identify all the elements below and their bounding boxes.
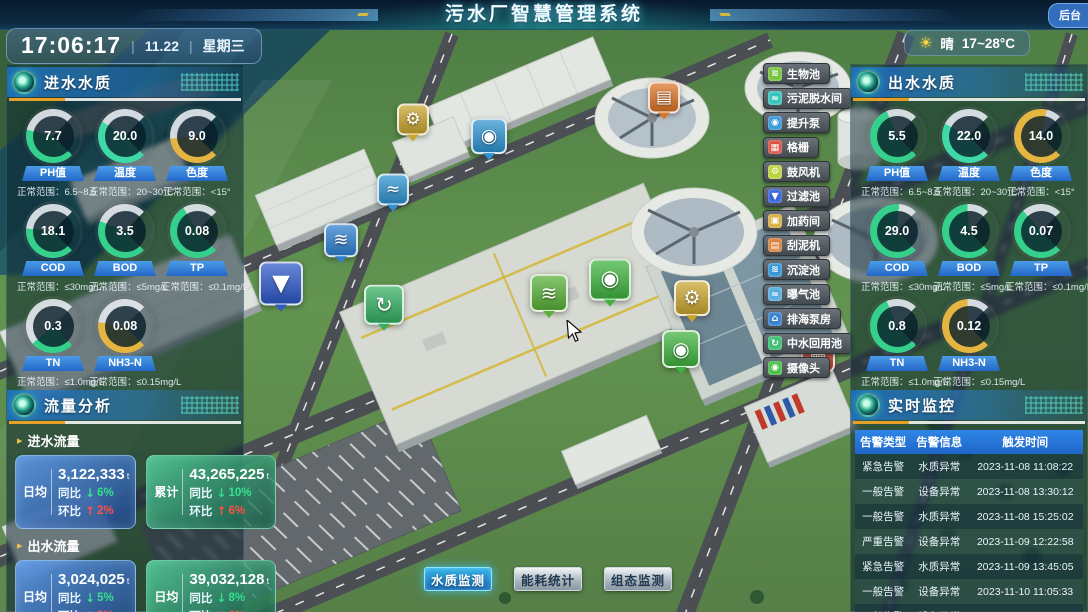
gauge-label: PH值 xyxy=(866,166,928,181)
gauge-normal-range: 正常范围：≤0.15mg/L xyxy=(89,374,161,388)
gauge-dial-center: 20.0 xyxy=(105,116,146,157)
marker-pointer-icon xyxy=(483,153,495,160)
section-ring-icon xyxy=(12,70,36,94)
facility-icon: ↻ xyxy=(768,336,782,350)
marker-pointer-icon xyxy=(604,300,616,307)
gauge-label: TP xyxy=(166,261,228,276)
inlet-quality-header: 进水水质 xyxy=(7,67,243,97)
gauge-normal-range: 正常范围：≤30mg/L xyxy=(17,279,89,293)
gauge-dial-center: 0.08 xyxy=(105,306,146,347)
gauge-normal-range: 正常范围：≤30mg/L xyxy=(861,279,933,293)
facility-button[interactable]: ≋ 沉淀池 xyxy=(763,259,830,280)
weather-condition: 晴 xyxy=(940,33,954,53)
weather-temperature: 17~28°C xyxy=(962,36,1015,51)
yoy-row: 同比 ↓ 5% xyxy=(58,590,129,606)
alarm-type-cell: 紧急告警 xyxy=(855,454,911,479)
flow-card-body: 39,032,128t 同比 ↓ 8% 环比 ↑ 6% xyxy=(189,571,269,612)
yoy-row: 同比 ↓ 10% xyxy=(189,485,269,501)
facility-icon: ▤ xyxy=(768,238,782,252)
flow-value: 3,122,333t xyxy=(58,466,129,483)
weather-widget: ☀ 晴 17~28°C xyxy=(904,30,1030,56)
marker-icon: ≈ xyxy=(386,181,400,198)
alarm-info-cell: 设备异常 xyxy=(911,579,967,604)
current-time: 17:06:17 xyxy=(21,32,121,59)
trend-arrow-icon: ↓ xyxy=(216,591,226,605)
facility-icon: ≈ xyxy=(768,91,782,105)
gauge-value: 20.0 xyxy=(113,129,137,143)
facility-icon: ▣ xyxy=(768,214,782,228)
flow-card-tag: 累计 xyxy=(153,485,179,499)
gauge-dial-center: 5.5 xyxy=(877,116,918,157)
alarm-rows: 紧急告警 水质异常 2023-11-08 11:08:22 一般告警 设备异常 … xyxy=(855,454,1083,612)
alarm-time-cell: 2023-11-08 11:08:22 xyxy=(967,454,1083,479)
facility-button[interactable]: ≈ 污泥脱水间 xyxy=(763,88,852,109)
gauge-dial-center: 29.0 xyxy=(877,211,918,252)
header-decoration-right xyxy=(710,9,960,21)
section-title: 实时监控 xyxy=(888,395,956,416)
quality-gauge: 4.5 BOD 正常范围：≤5mg/L xyxy=(933,204,1005,293)
facility-button[interactable]: ▤ 刮泥机 xyxy=(763,235,830,256)
alarm-time-cell: 2023-11-08 13:30:12 xyxy=(967,479,1083,504)
scene-marker-camera[interactable]: ◉ xyxy=(589,259,631,301)
gauge-dial: 5.5 xyxy=(870,109,924,163)
quality-gauge: 0.3 TN 正常范围：≤1.0mg/L xyxy=(17,299,89,388)
trend-arrow-icon: ↑ xyxy=(85,504,95,518)
gauge-label: 色度 xyxy=(166,166,228,181)
divider xyxy=(51,469,52,515)
gauge-normal-range: 正常范围：20~30°C xyxy=(89,184,161,198)
quality-gauge: 0.07 TP 正常范围：≤0.1mg/L xyxy=(1005,204,1077,293)
quality-gauge: 5.5 PH值 正常范围：6.5~8.5 xyxy=(861,109,933,198)
quality-gauge: 3.5 BOD 正常范围：≤5mg/L xyxy=(89,204,161,293)
gauge-value: 0.3 xyxy=(44,319,61,333)
gauge-label: TN xyxy=(866,356,928,371)
gauge-dial-center: 0.12 xyxy=(949,306,990,347)
flow-card-tag: 日均 xyxy=(22,485,48,499)
gauge-dial: 0.3 xyxy=(26,299,80,353)
marker-icon: ◉ xyxy=(672,339,689,359)
trend-arrow-icon: ↑ xyxy=(216,504,226,518)
bottom-tab-bar: 水质监测 能耗统计 组态监测 xyxy=(424,567,672,591)
dashboard-root: ⚙ ◉ ▤ ≈ ≋ ▼ ↻ ≋ ◉ ⚙ ◉ ▦ 污水厂智慧管理系统 xyxy=(0,0,1088,612)
gauge-label: 温度 xyxy=(938,166,1000,181)
gauge-normal-range: 正常范围：<15° xyxy=(161,184,233,198)
facility-icon: ⌂ xyxy=(768,312,782,326)
alarm-row[interactable]: 紧急告警 水质异常 2023-11-09 13:45:05 xyxy=(855,554,1083,579)
quality-gauge: 29.0 COD 正常范围：≤30mg/L xyxy=(861,204,933,293)
gauge-dial-center: 0.8 xyxy=(877,306,918,347)
facility-button[interactable]: ▣ 加药间 xyxy=(763,210,830,231)
flow-stat-card: 日均 3,024,025t 同比 ↓ 5% 环比 ↑ 3% xyxy=(15,560,136,612)
gauge-label: 色度 xyxy=(1010,166,1072,181)
section-title: 进水水质 xyxy=(44,72,112,93)
gauge-normal-range: 正常范围：≤5mg/L xyxy=(89,279,161,293)
bullet-icon: ▸ xyxy=(17,539,23,552)
flow-stat-card: 日均 3,122,333t 同比 ↓ 6% 环比 ↑ 2% xyxy=(15,455,136,529)
gauge-dial-center: 0.3 xyxy=(33,306,74,347)
gauge-normal-range: 正常范围：20~30°C xyxy=(933,184,1005,198)
realtime-monitoring-header: 实时监控 xyxy=(851,390,1087,420)
quality-gauge: 9.0 色度 正常范围：<15° xyxy=(161,109,233,198)
alarm-row[interactable]: 紧急告警 水质异常 2023-11-08 11:08:22 xyxy=(855,454,1083,479)
gauge-dial: 0.08 xyxy=(170,204,224,258)
facility-icon: ≋ xyxy=(768,263,782,277)
quality-gauge: 0.12 NH3-N 正常范围：≤0.15mg/L xyxy=(933,299,1005,388)
gauge-normal-range: 正常范围：≤0.15mg/L xyxy=(933,374,1005,388)
marker-icon: ▤ xyxy=(656,89,672,106)
alarm-row[interactable]: 一般告警 水质异常 2023-11-08 15:25:02 xyxy=(855,504,1083,529)
outlet-flow-label: ▸ 出水流量 xyxy=(17,536,243,555)
gauge-label: 温度 xyxy=(94,166,156,181)
gauge-label: TP xyxy=(1010,261,1072,276)
quality-gauge: 0.08 NH3-N 正常范围：≤0.15mg/L xyxy=(89,299,161,388)
gauge-dial-center: 3.5 xyxy=(105,211,146,252)
scene-marker-reuse-pool[interactable]: ↻ xyxy=(364,285,404,325)
divider xyxy=(182,469,183,515)
facility-icon: ⚙ xyxy=(768,165,782,179)
marker-pointer-icon xyxy=(686,315,698,322)
trend-arrow-icon: ↓ xyxy=(85,591,95,605)
scene-marker-blower-fan[interactable]: ⚙ xyxy=(674,280,710,316)
gauge-normal-range: 正常范围：≤1.0mg/L xyxy=(861,374,933,388)
alarm-info-cell: 水质异常 xyxy=(911,504,967,529)
gauge-value: 0.07 xyxy=(1029,224,1053,238)
mom-row: 环比 ↑ 6% xyxy=(189,608,269,612)
gauge-normal-range: 正常范围：6.5~8.5 xyxy=(17,184,89,198)
divider xyxy=(853,421,1085,424)
gauge-label: COD xyxy=(866,261,928,276)
marker-icon: ↻ xyxy=(375,294,393,315)
header-decoration-left xyxy=(128,9,378,21)
gauge-value: 18.1 xyxy=(41,224,65,238)
alarm-time-cell: 2023-11-09 12:22:58 xyxy=(967,529,1083,554)
quality-gauge: 14.0 色度 正常范围：<15° xyxy=(1005,109,1077,198)
gauge-value: 14.0 xyxy=(1029,129,1053,143)
trend-arrow-icon: ↓ xyxy=(85,486,95,500)
alarm-type-cell: 严重告警 xyxy=(855,529,911,554)
gauge-normal-range: 正常范围：≤0.1mg/L xyxy=(1005,279,1077,293)
gauge-dial-center: 4.5 xyxy=(949,211,990,252)
clock-widget: 17:06:17 | 11.22 | 星期三 xyxy=(6,28,262,64)
section-title: 出水水质 xyxy=(888,72,956,93)
gauge-value: 3.5 xyxy=(116,224,133,238)
gauge-value: 0.8 xyxy=(888,319,905,333)
gauge-dial-center: 9.0 xyxy=(177,116,218,157)
gauge-dial: 7.7 xyxy=(26,109,80,163)
divider xyxy=(9,421,241,424)
facility-button[interactable]: ≈ 曝气池 xyxy=(763,284,830,305)
section-ring-icon xyxy=(856,393,880,417)
alarm-type-cell: 紧急告警 xyxy=(855,554,911,579)
alarm-row[interactable]: 一般告警 设备异常 2023-11-10 11:05:33 xyxy=(855,579,1083,604)
section-title: 流量分析 xyxy=(44,395,112,416)
gauge-normal-range: 正常范围：6.5~8.5 xyxy=(861,184,933,198)
mom-row: 环比 ↑ 2% xyxy=(58,503,129,519)
marker-icon: ⚙ xyxy=(405,111,420,128)
section-ring-icon xyxy=(856,70,880,94)
gauge-value: 9.0 xyxy=(188,129,205,143)
gauge-dial: 29.0 xyxy=(870,204,924,258)
flow-stat-card: 日均 39,032,128t 同比 ↓ 8% 环比 ↑ 6% xyxy=(146,560,276,612)
alarm-type-cell: 一般告警 xyxy=(855,604,911,612)
gauge-dial-center: 0.07 xyxy=(1021,211,1062,252)
marker-pointer-icon xyxy=(275,304,287,311)
marker-icon: ⚙ xyxy=(683,289,700,308)
alarm-info-cell: 水质异常 xyxy=(911,554,967,579)
alarm-type-cell: 一般告警 xyxy=(855,479,911,504)
realtime-monitoring-section: 实时监控 告警类型 告警信息 触发时间 紧急告警 水质异常 2023-11-08… xyxy=(851,390,1087,612)
trend-arrow-icon: ↑ xyxy=(216,609,226,612)
gauge-dial-center: 7.7 xyxy=(33,116,74,157)
current-date: 11.22 xyxy=(145,38,179,54)
gauge-dial-center: 0.08 xyxy=(177,211,218,252)
column-trigger-time: 触发时间 xyxy=(967,430,1083,454)
gauge-label: NH3-N xyxy=(94,356,156,371)
inlet-gauges: 7.7 PH值 正常范围：6.5~8.5 20.0 温度 正常范围：20~30°… xyxy=(7,101,243,388)
gauge-dial-center: 18.1 xyxy=(33,211,74,252)
flow-card-body: 43,265,225t 同比 ↓ 10% 环比 ↑ 6% xyxy=(189,466,269,519)
gauge-dial: 0.07 xyxy=(1014,204,1068,258)
alarm-type-cell: 一般告警 xyxy=(855,504,911,529)
outlet-quality-section: 出水水质 5.5 PH值 正常范围：6.5~8.5 22.0 温度 正常范围：2… xyxy=(851,67,1087,388)
bottom-tab[interactable]: 水质监测 xyxy=(424,567,492,591)
flow-value: 43,265,225t xyxy=(189,466,269,483)
quality-gauge: 22.0 温度 正常范围：20~30°C xyxy=(933,109,1005,198)
alarm-table: 告警类型 告警信息 触发时间 紧急告警 水质异常 2023-11-08 11:0… xyxy=(855,430,1083,612)
facility-icon: ▦ xyxy=(768,140,782,154)
mom-row: 环比 ↑ 6% xyxy=(189,503,269,519)
gauge-dial: 0.8 xyxy=(870,299,924,353)
gauge-normal-range: 正常范围：≤1.0mg/L xyxy=(17,374,89,388)
gauge-dial: 18.1 xyxy=(26,204,80,258)
marker-icon: ◉ xyxy=(600,269,619,291)
facility-icon: ≋ xyxy=(768,67,782,81)
column-alarm-type: 告警类型 xyxy=(855,430,911,454)
alarm-time-cell: 2023-11-08 15:25:02 xyxy=(967,504,1083,529)
gauge-dial: 20.0 xyxy=(98,109,152,163)
marker-pointer-icon xyxy=(407,134,419,141)
scene-marker-lift-pump[interactable]: ◉ xyxy=(471,118,507,154)
facility-button[interactable]: ▦ 格栅 xyxy=(763,137,819,158)
facility-button[interactable]: ↻ 中水回用池 xyxy=(763,333,852,354)
facility-icon: ◉ xyxy=(768,116,782,130)
gauge-label: TN xyxy=(22,356,84,371)
gauge-label: BOD xyxy=(938,261,1000,276)
gauge-label: PH值 xyxy=(22,166,84,181)
facility-button[interactable]: ▼ 过滤池 xyxy=(763,186,830,207)
trend-arrow-icon: ↑ xyxy=(85,609,95,612)
gauge-label: BOD xyxy=(94,261,156,276)
gauge-dial: 4.5 xyxy=(942,204,996,258)
quality-gauge: 7.7 PH值 正常范围：6.5~8.5 xyxy=(17,109,89,198)
flow-card-body: 3,024,025t 同比 ↓ 5% 环比 ↑ 3% xyxy=(58,571,129,612)
gauge-label: COD xyxy=(22,261,84,276)
gauge-value: 5.5 xyxy=(888,129,905,143)
marker-pointer-icon xyxy=(387,204,399,211)
current-weekday: 星期三 xyxy=(203,36,245,56)
facility-icon: ▼ xyxy=(768,189,782,203)
facility-icon: ◉ xyxy=(768,361,782,375)
scene-marker-blower-fan[interactable]: ⚙ xyxy=(397,103,429,135)
section-ring-icon xyxy=(12,393,36,417)
alarm-time-cell: 2023-11-10 15:02:44 xyxy=(967,604,1083,612)
outlet-flow-cards: 日均 3,024,025t 同比 ↓ 5% 环比 ↑ 3% 日均 xyxy=(7,560,243,612)
gauge-normal-range: 正常范围：<15° xyxy=(1005,184,1077,198)
trend-arrow-icon: ↓ xyxy=(216,486,226,500)
marker-icon: ◉ xyxy=(481,127,498,146)
facility-button[interactable]: ⚙ 鼓风机 xyxy=(763,161,830,182)
mom-row: 环比 ↑ 3% xyxy=(58,608,129,612)
gauge-label: NH3-N xyxy=(938,356,1000,371)
divider: | xyxy=(131,38,135,54)
quality-gauge: 18.1 COD 正常范围：≤30mg/L xyxy=(17,204,89,293)
flow-card-body: 3,122,333t 同比 ↓ 6% 环比 ↑ 2% xyxy=(58,466,129,519)
facility-icon: ≈ xyxy=(768,287,782,301)
yoy-row: 同比 ↓ 8% xyxy=(189,590,269,606)
gauge-dial: 22.0 xyxy=(942,109,996,163)
alarm-type-cell: 一般告警 xyxy=(855,579,911,604)
gauge-value: 7.7 xyxy=(44,129,61,143)
gauge-value: 0.12 xyxy=(957,319,981,333)
divider: | xyxy=(189,38,193,54)
gauge-dial: 9.0 xyxy=(170,109,224,163)
flow-analysis-section: 流量分析 ▸ 进水流量 日均 3,122,333t 同比 ↓ 6% 环比 xyxy=(7,390,243,612)
marker-pointer-icon xyxy=(658,112,670,119)
marker-icon: ▼ xyxy=(272,272,290,295)
gauge-value: 29.0 xyxy=(885,224,909,238)
column-alarm-info: 告警信息 xyxy=(911,430,967,454)
quality-gauge: 20.0 温度 正常范围：20~30°C xyxy=(89,109,161,198)
flow-value: 39,032,128t xyxy=(189,571,269,588)
outlet-quality-header: 出水水质 xyxy=(851,67,1087,97)
marker-icon: ≋ xyxy=(333,231,348,249)
yoy-row: 同比 ↓ 6% xyxy=(58,485,129,501)
alarm-row[interactable]: 一般告警 设备异常 2023-11-10 15:02:44 xyxy=(855,604,1083,612)
alarm-info-cell: 水质异常 xyxy=(911,454,967,479)
gauge-value: 0.08 xyxy=(185,224,209,238)
scene-marker-filter-pool[interactable]: ▼ xyxy=(259,261,303,305)
sun-icon: ☀ xyxy=(919,34,932,52)
facility-button[interactable]: ◉ 摄像头 xyxy=(763,357,830,378)
gauge-value: 0.08 xyxy=(113,319,137,333)
gauge-normal-range: 正常范围：≤0.1mg/L xyxy=(161,279,233,293)
gauge-dial-center: 14.0 xyxy=(1021,116,1062,157)
gauge-dial-center: 22.0 xyxy=(949,116,990,157)
alarm-row[interactable]: 严重告警 设备异常 2023-11-09 12:22:58 xyxy=(855,529,1083,554)
divider xyxy=(51,574,52,612)
scene-marker-pool[interactable]: ≈ xyxy=(377,173,409,205)
marker-pointer-icon xyxy=(378,324,390,331)
gauge-dial: 0.12 xyxy=(942,299,996,353)
right-panel: 出水水质 5.5 PH值 正常范围：6.5~8.5 22.0 温度 正常范围：2… xyxy=(850,64,1088,612)
flow-card-tag: 日均 xyxy=(153,590,179,604)
scene-marker-sedimentation-pool[interactable]: ≋ xyxy=(324,223,358,257)
scene-marker-sludge-dewatering[interactable]: ▤ xyxy=(648,81,680,113)
marker-pointer-icon xyxy=(335,256,347,263)
bottom-tab[interactable]: 组态监测 xyxy=(604,567,672,591)
left-panel: 进水水质 7.7 PH值 正常范围：6.5~8.5 20.0 温度 正常范围：2… xyxy=(6,64,244,612)
marker-pointer-icon xyxy=(675,367,687,374)
bottom-tab[interactable]: 能耗统计 xyxy=(514,567,582,591)
gauge-dial: 0.08 xyxy=(98,299,152,353)
inlet-flow-cards: 日均 3,122,333t 同比 ↓ 6% 环比 ↑ 2% 累计 xyxy=(7,455,243,529)
outlet-gauges: 5.5 PH值 正常范围：6.5~8.5 22.0 温度 正常范围：20~30°… xyxy=(851,101,1087,388)
scene-marker-aeration-pool[interactable]: ≋ xyxy=(530,274,568,312)
facility-button[interactable]: ⌂ 排海泵房 xyxy=(763,308,841,329)
quality-gauge: 0.08 TP 正常范围：≤0.1mg/L xyxy=(161,204,233,293)
gauge-value: 4.5 xyxy=(960,224,977,238)
alarm-time-cell: 2023-11-10 11:05:33 xyxy=(967,579,1083,604)
quality-gauge: 0.8 TN 正常范围：≤1.0mg/L xyxy=(861,299,933,388)
flow-stat-card: 累计 43,265,225t 同比 ↓ 10% 环比 ↑ 6% xyxy=(146,455,276,529)
facility-menu: ≋ 生物池 ≈ 污泥脱水间 ◉ 提升泵 ▦ 格栅 ⚙ 鼓风机 ▼ 过滤池 ▣ 加… xyxy=(763,63,852,378)
alarm-info-cell: 设备异常 xyxy=(911,529,967,554)
divider xyxy=(182,574,183,612)
top-header: 污水厂智慧管理系统 xyxy=(0,0,1088,30)
gauge-value: 22.0 xyxy=(957,129,981,143)
backend-button[interactable]: 后台 xyxy=(1048,3,1088,28)
alarm-row[interactable]: 一般告警 设备异常 2023-11-08 13:30:12 xyxy=(855,479,1083,504)
bullet-icon: ▸ xyxy=(17,434,23,447)
flow-value: 3,024,025t xyxy=(58,571,129,588)
alarm-info-cell: 设备异常 xyxy=(911,479,967,504)
inlet-flow-label: ▸ 进水流量 xyxy=(17,431,243,450)
marker-icon: ≋ xyxy=(541,283,558,303)
alarm-info-cell: 设备异常 xyxy=(911,604,967,612)
gauge-normal-range: 正常范围：≤5mg/L xyxy=(933,279,1005,293)
gauge-dial: 3.5 xyxy=(98,204,152,258)
marker-pointer-icon xyxy=(543,311,555,318)
scene-marker-camera[interactable]: ◉ xyxy=(662,330,700,368)
alarm-time-cell: 2023-11-09 13:45:05 xyxy=(967,554,1083,579)
gauge-dial: 14.0 xyxy=(1014,109,1068,163)
inlet-quality-section: 进水水质 7.7 PH值 正常范围：6.5~8.5 20.0 温度 正常范围：2… xyxy=(7,67,243,388)
alarm-table-header: 告警类型 告警信息 触发时间 xyxy=(855,430,1083,454)
facility-button[interactable]: ≋ 生物池 xyxy=(763,63,830,84)
flow-card-tag: 日均 xyxy=(22,590,48,604)
facility-button[interactable]: ◉ 提升泵 xyxy=(763,112,830,133)
flow-analysis-header: 流量分析 xyxy=(7,390,243,420)
